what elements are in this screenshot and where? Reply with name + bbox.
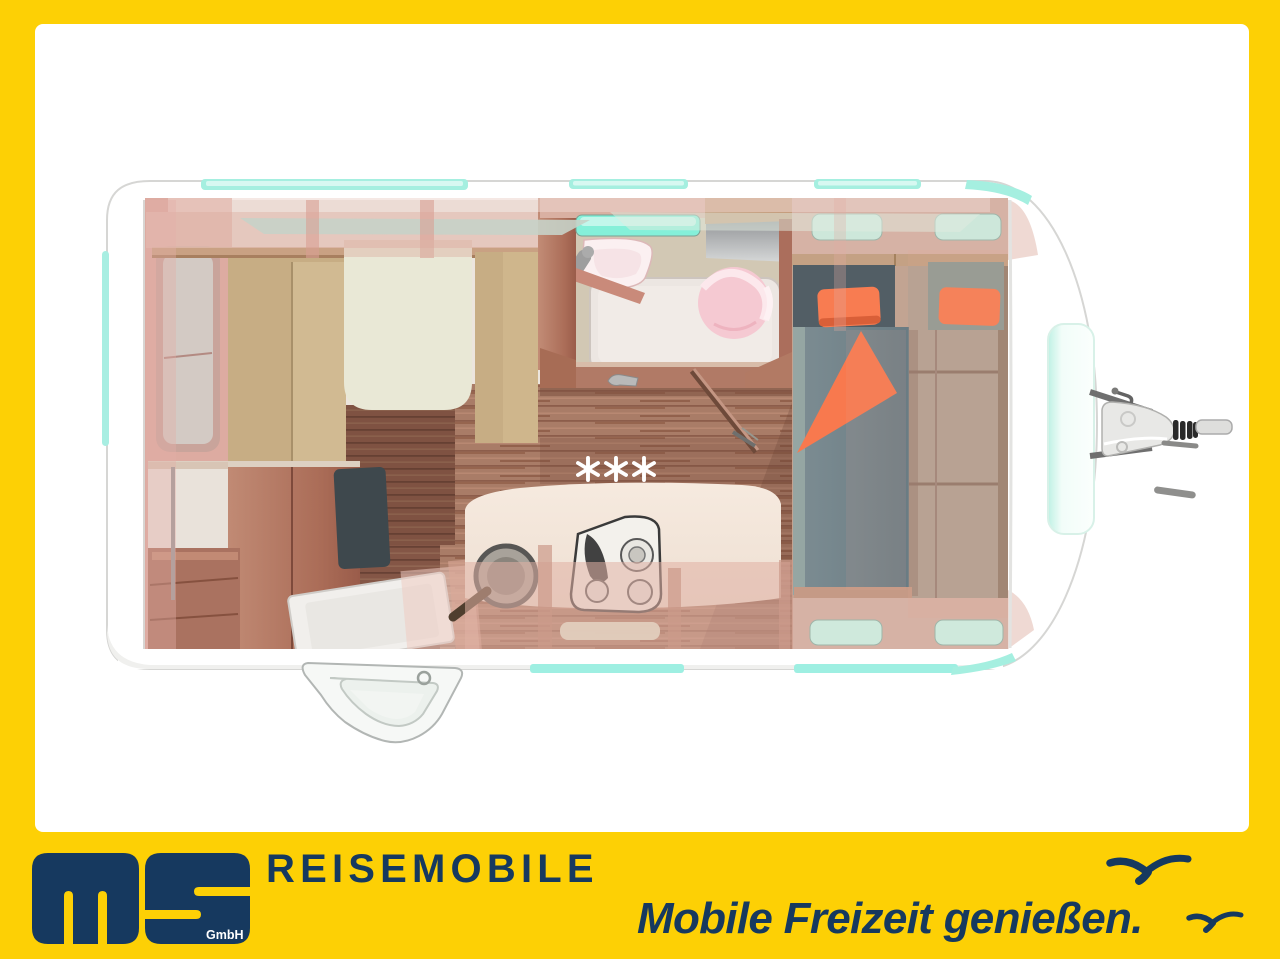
svg-text:REISEMOBILE: REISEMOBILE — [266, 847, 599, 891]
svg-text:GmbH: GmbH — [206, 928, 244, 942]
svg-text:Mobile Freizeit genießen.: Mobile Freizeit genießen. — [637, 894, 1143, 943]
